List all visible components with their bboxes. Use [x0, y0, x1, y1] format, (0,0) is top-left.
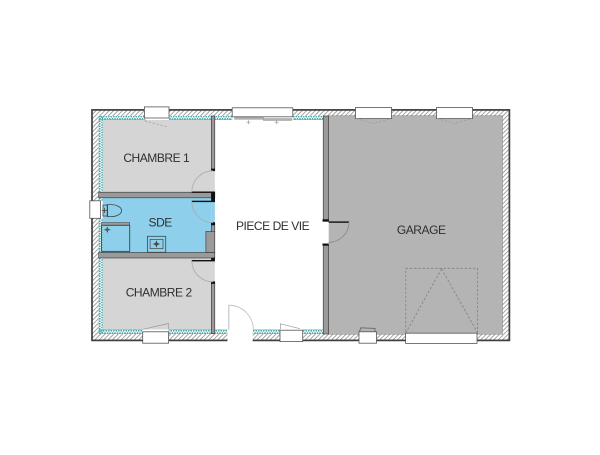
- svg-text:SDE: SDE: [149, 216, 173, 230]
- svg-text:GARAGE: GARAGE: [397, 223, 446, 237]
- svg-text:CHAMBRE 1: CHAMBRE 1: [123, 151, 190, 165]
- svg-text:PIECE DE VIE: PIECE DE VIE: [236, 219, 310, 233]
- svg-text:CHAMBRE 2: CHAMBRE 2: [126, 286, 193, 300]
